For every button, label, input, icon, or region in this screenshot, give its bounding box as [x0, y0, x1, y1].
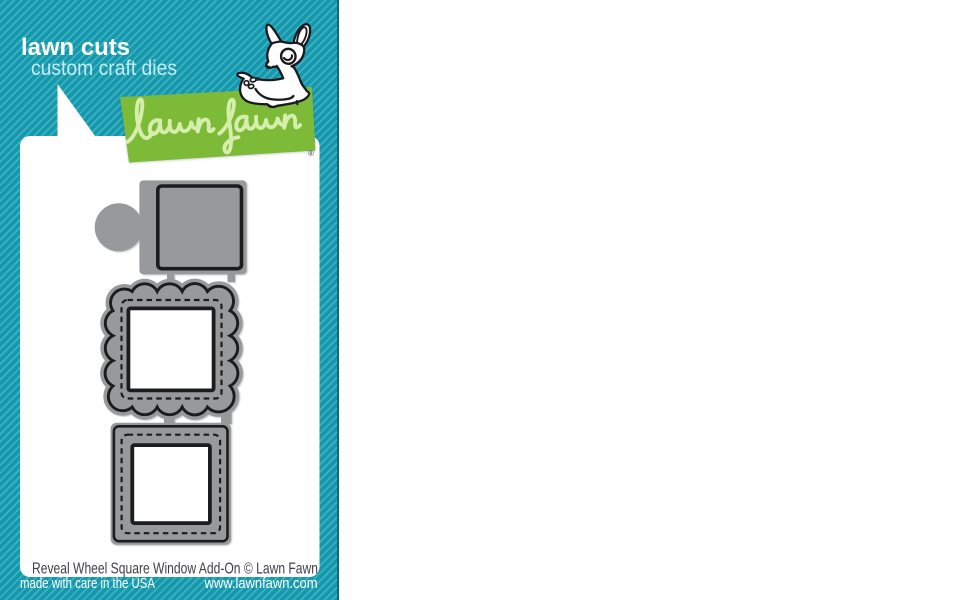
svg-text:custom craft dies: custom craft dies	[31, 57, 177, 80]
svg-text:www.lawnfawn.com: www.lawnfawn.com	[204, 575, 318, 592]
svg-text:made with care in the USA: made with care in the USA	[20, 575, 155, 592]
svg-text:®: ®	[308, 149, 314, 158]
